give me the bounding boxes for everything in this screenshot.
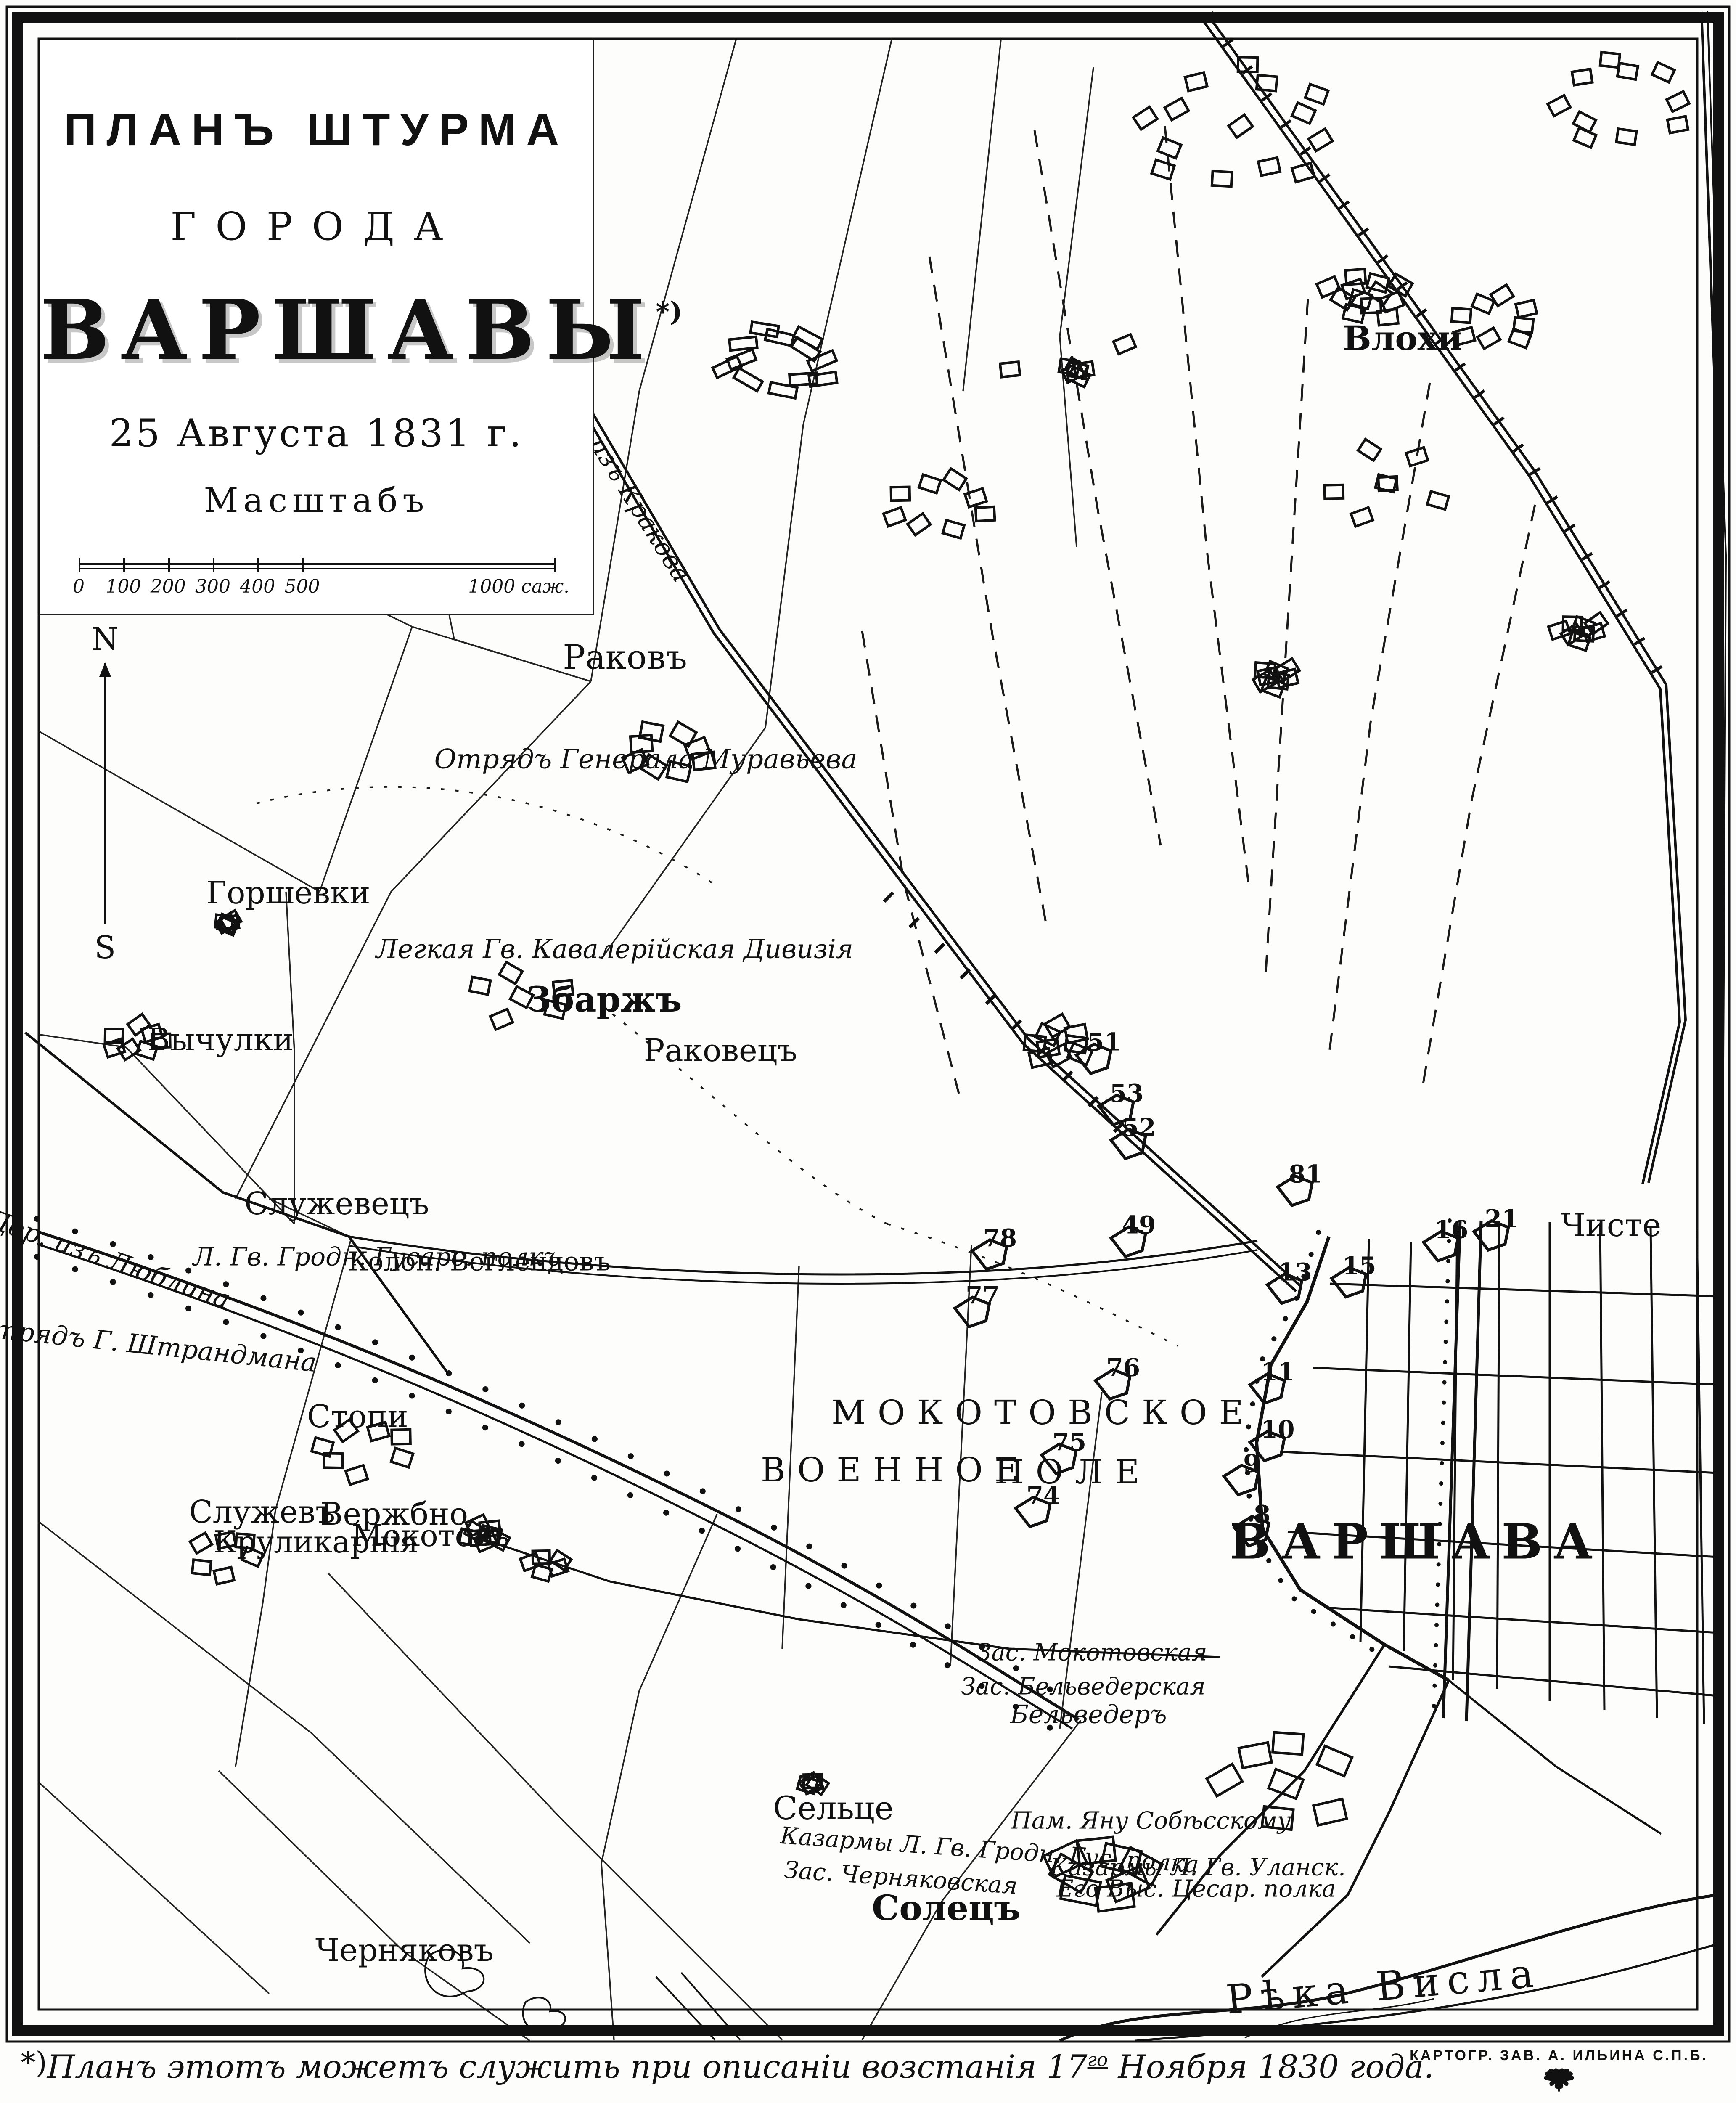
- map-title-city: ВАРШАВЫ*): [40, 289, 593, 371]
- scale-tick-label: 100: [106, 576, 141, 597]
- publisher-text: КАРТОГР. ЗАВ. А. ИЛЬИНА С.П.Б.: [1410, 2047, 1708, 2064]
- scale-tick-label: 200: [151, 576, 186, 597]
- eagle-emblem-icon: [1543, 2066, 1575, 2096]
- map-label-gorshevki: Горшевки: [206, 877, 370, 910]
- map-canvas: ПЛАНЪ ШТУРМА ГОРОДА ВАРШАВЫ*) 25 Августа…: [0, 0, 1736, 2103]
- fort-number-13: 13: [1278, 1259, 1312, 1285]
- map-label-vlokhi: Влохи: [1343, 320, 1462, 356]
- map-label-belveder: Бельведеръ: [1010, 1701, 1167, 1728]
- map-label-sluzhevets: Служевецъ: [244, 1188, 429, 1221]
- map-label-mokotovskoe: МОКОТОВСКОЕ: [831, 1395, 1255, 1430]
- footnote-marker: *): [21, 2045, 47, 2080]
- compass: N S: [80, 621, 130, 966]
- scale-tick-end: [554, 558, 556, 572]
- map-label-otryad-muravyeva: Отрядъ Генерала Муравьева: [434, 745, 857, 773]
- scale-end-label: 1000 саж.: [468, 576, 569, 597]
- map-label-kolon-veglendov: Колон. Веглендовъ: [348, 1248, 611, 1275]
- compass-north-label: N: [92, 621, 119, 657]
- compass-needle: [104, 663, 106, 924]
- fort-number-21: 21: [1485, 1206, 1519, 1232]
- map-label-varshava: ВАРШАВА: [1230, 1517, 1604, 1568]
- title-block: ПЛАНЪ ШТУРМА ГОРОДА ВАРШАВЫ*) 25 Августа…: [40, 40, 593, 614]
- fort-number-49: 49: [1122, 1213, 1156, 1238]
- map-label-zas-mokotovskaya: Зас. Мокотовская: [977, 1641, 1207, 1666]
- map-title-line2: ГОРОДА: [40, 204, 593, 249]
- fort-number-16: 16: [1434, 1217, 1469, 1242]
- scale-tick-label: 500: [285, 576, 320, 597]
- scale-tick-label: 400: [240, 576, 275, 597]
- scale-bar-line: [79, 563, 554, 569]
- map-label-otryad-shtrandmana: Отрядъ Г. Штрандмана: [0, 1313, 318, 1376]
- footnote-sup: го: [1088, 2049, 1108, 2071]
- fort-number-78: 78: [983, 1225, 1017, 1251]
- map-label-pam-yanu-sobesskomu: Пам. Яну Собѣсскому: [1011, 1809, 1291, 1833]
- map-scale-word: Масштабъ: [40, 481, 593, 520]
- fort-number-51: 51: [1087, 1030, 1121, 1055]
- footnote-text: Планъ этотъ можетъ служить при описаніи …: [47, 2048, 1434, 2085]
- map-label-ego-vys-tsesar-polka: Его Выс. Цесар. полка: [1056, 1877, 1336, 1902]
- scale-tick-label: 300: [195, 576, 230, 597]
- map-label-zbarzh: Збаржъ: [527, 982, 682, 1018]
- map-label-zas-belvederskaya: Зас. Бельведерская: [961, 1675, 1205, 1700]
- fort-number-53: 53: [1110, 1081, 1144, 1106]
- footnote-text-end: Ноября 1830 года.: [1108, 2048, 1434, 2085]
- fort-number-8: 8: [1254, 1502, 1270, 1528]
- map-label-rakovets: Раковецъ: [644, 1035, 797, 1067]
- map-label-seltse: Сельце: [773, 1791, 894, 1825]
- scale-tick-label: 0: [73, 576, 85, 597]
- map-title-city-text: ВАРШАВЫ: [40, 282, 656, 379]
- publisher-credit: КАРТОГР. ЗАВ. А. ИЛЬИНА С.П.Б.: [1410, 2047, 1708, 2098]
- fort-number-76: 76: [1106, 1355, 1140, 1381]
- scale-tick: [213, 558, 214, 572]
- scale-tick: [257, 558, 259, 572]
- fort-number-77: 77: [966, 1283, 1000, 1308]
- scale-tick: [168, 558, 170, 572]
- scale-tick: [79, 558, 80, 572]
- map-title-line1: ПЛАНЪ ШТУРМА: [40, 103, 593, 156]
- footnote-text-start: Планъ этотъ можетъ служить при описаніи …: [47, 2048, 1088, 2085]
- map-title-date: 25 Августа 1831 г.: [40, 411, 593, 456]
- fort-number-10: 10: [1261, 1417, 1295, 1443]
- fort-number-15: 15: [1342, 1253, 1376, 1279]
- fort-number-11: 11: [1261, 1359, 1295, 1385]
- scale-tick: [123, 558, 125, 572]
- map-footnote: *)Планъ этотъ можетъ служить при описані…: [21, 2045, 1434, 2085]
- map-label-voennoe: ВОЕННОЕ: [761, 1452, 1031, 1488]
- map-label-stopi: Стопи: [307, 1401, 408, 1433]
- map-label-chiste: Чисте: [1561, 1209, 1661, 1242]
- fort-number-75: 75: [1052, 1430, 1086, 1455]
- map-label-pole: ПОЛЕ: [995, 1454, 1151, 1490]
- map-title-footnote-ref: *): [656, 296, 683, 328]
- map-label-reka-visla: Рѣка Висла: [1225, 1952, 1543, 2022]
- fort-number-52: 52: [1122, 1115, 1156, 1140]
- map-label-chernyakov: Черняковъ: [315, 1934, 494, 1967]
- map-label-mokotov: Мокотовъ: [352, 1520, 509, 1552]
- map-label-legkaya-gv-kav-diviziya: Легкая Гв. Кавалерійская Дивизія: [376, 935, 853, 962]
- fort-number-81: 81: [1289, 1162, 1323, 1187]
- scale-bar: 0100200300400500 1000 саж.: [79, 556, 554, 593]
- fort-number-9: 9: [1243, 1451, 1260, 1476]
- compass-south-label: S: [95, 930, 116, 966]
- fort-number-74: 74: [1027, 1483, 1061, 1508]
- map-label-vychulki: Вычулки: [147, 1024, 294, 1057]
- scale-tick: [302, 558, 304, 572]
- map-label-rakov: Раковъ: [563, 640, 687, 675]
- map-label-solets: Солецъ: [872, 1890, 1020, 1926]
